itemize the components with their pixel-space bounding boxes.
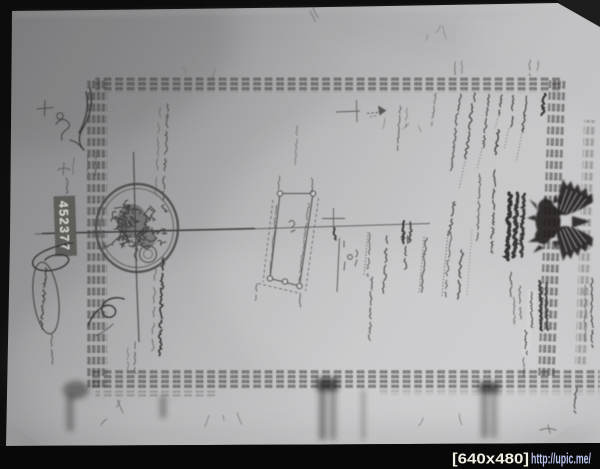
- svg-text:[640x480]: [640x480]: [452, 451, 529, 468]
- svg-text:http://upic.me/: http://upic.me/: [531, 451, 591, 468]
